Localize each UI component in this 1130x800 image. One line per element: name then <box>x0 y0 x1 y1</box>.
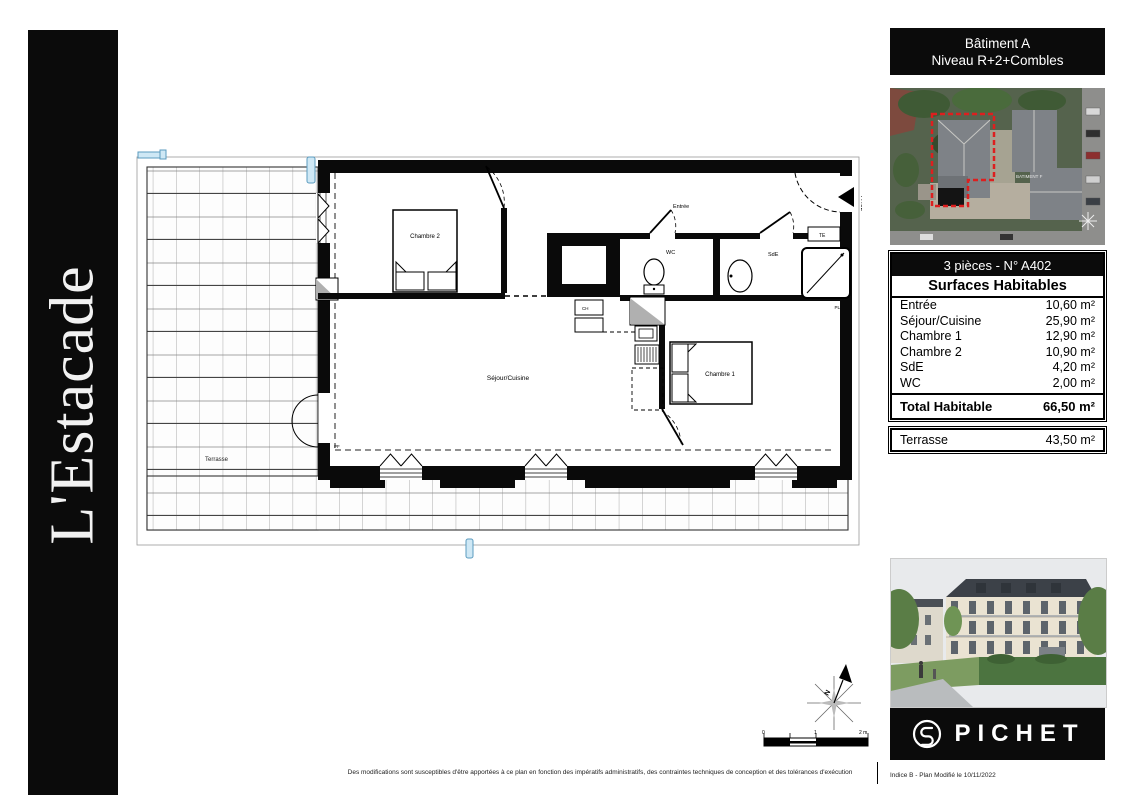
compass-and-scale: N 0 1 2 m <box>762 658 874 760</box>
terrace-value: 43,50 m² <box>1046 433 1095 447</box>
aerial-site-photo: BATIMENT F <box>890 88 1105 245</box>
batiment-f-label: BATIMENT F <box>1016 174 1043 179</box>
left-window <box>316 193 332 243</box>
project-banner: L'Estacade <box>28 30 118 795</box>
entree-label: Entrée <box>673 204 689 210</box>
north-arrow-icon <box>839 664 852 683</box>
compass-rose-icon <box>807 664 861 730</box>
svg-text:2 m: 2 m <box>859 730 867 736</box>
unit-title: 3 pièces - N° A402 <box>892 254 1103 276</box>
chambre2-label: Chambre 2 <box>410 234 440 240</box>
terrace-surface-box: Terrasse 43,50 m² <box>890 428 1105 452</box>
building-render-photo <box>890 558 1107 708</box>
te-label: TE <box>819 233 826 239</box>
sde-label: SdE <box>768 252 779 258</box>
toilet-icon <box>644 259 664 285</box>
table-row: Entrée10,60 m² <box>892 298 1103 314</box>
pichet-logo-icon <box>910 717 944 751</box>
table-row: Chambre 112,90 m² <box>892 329 1103 345</box>
table-row: Chambre 210,90 m² <box>892 345 1103 361</box>
scale-bar: 0 1 2 m <box>762 730 868 746</box>
unit-ref-label: A402 <box>859 196 862 212</box>
level-label: Niveau R+2+Combles <box>890 53 1105 68</box>
pl-label: PL <box>834 305 840 310</box>
table-row: Séjour/Cuisine25,90 m² <box>892 314 1103 330</box>
wc-label: WC <box>666 250 675 256</box>
chambre2: Chambre 2 <box>393 210 457 292</box>
floor-plan-sheet: L'Estacade Terrasse <box>0 0 1130 800</box>
project-title: L'Estacade <box>38 265 109 544</box>
pichet-logo-text: PICHET <box>954 720 1084 748</box>
building-level-header: Bâtiment A Niveau R+2+Combles <box>890 28 1105 75</box>
table-row: WC2,00 m² <box>892 376 1103 392</box>
floor-plan: Terrasse <box>130 148 862 560</box>
building-label: Bâtiment A <box>890 36 1105 51</box>
pf-label: PF <box>334 444 340 449</box>
pichet-logo: PICHET <box>890 708 1105 760</box>
ch-label: CH <box>582 306 589 311</box>
table-row: SdE4,20 m² <box>892 360 1103 376</box>
terrace-label: Terrasse <box>900 433 948 447</box>
total-row: Total Habitable66,50 m² <box>892 393 1103 418</box>
surfaces-title: Surfaces Habitables <box>892 276 1103 298</box>
sejour-label: Séjour/Cuisine <box>487 375 530 382</box>
surfaces-table: 3 pièces - N° A402 Surfaces Habitables E… <box>890 252 1105 420</box>
elevator-shaft <box>547 233 620 297</box>
wall-chamfer-center <box>630 297 665 325</box>
terrace-label: Terrasse <box>205 457 229 463</box>
svg-text:1: 1 <box>814 730 817 736</box>
footer-divider <box>877 762 878 784</box>
svg-text:0: 0 <box>762 730 765 736</box>
north-label: N <box>824 689 833 697</box>
plan-revision-note: Indice B - Plan Modifié le 10/11/2022 <box>890 772 1105 779</box>
chambre1-label: Chambre 1 <box>705 372 735 378</box>
legal-disclaimer: Des modifications sont susceptibles d'êt… <box>330 769 870 776</box>
